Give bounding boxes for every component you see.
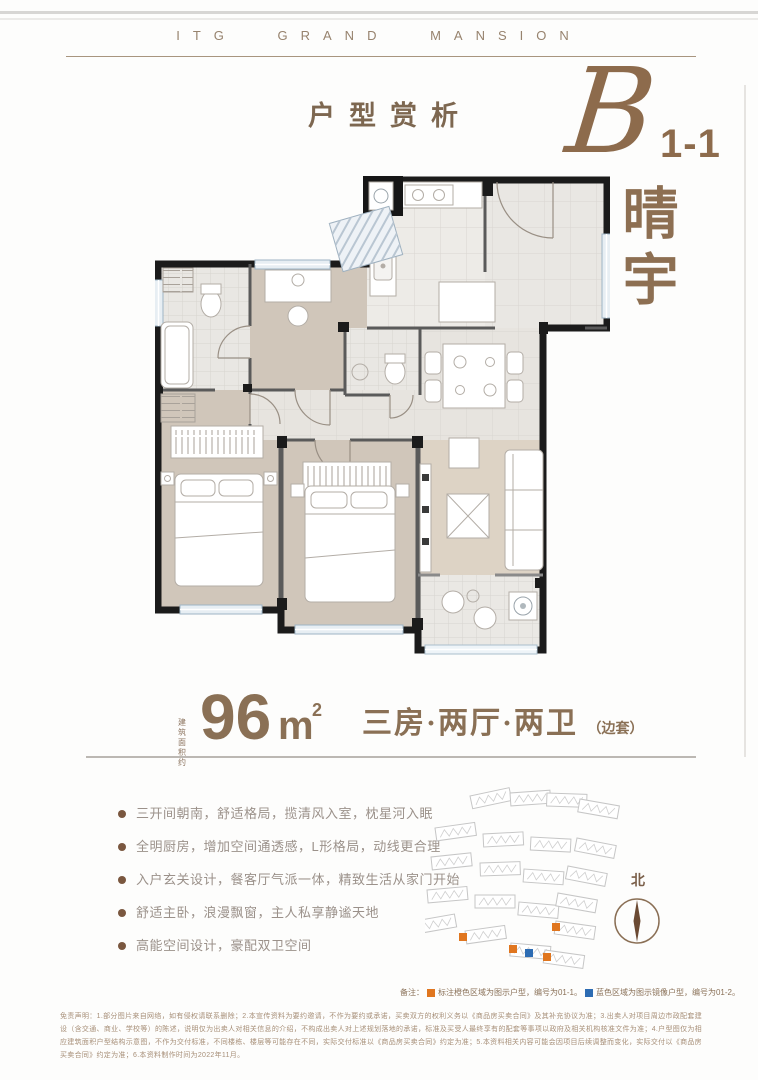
window-balcony-bottom xyxy=(425,645,537,654)
dining-table xyxy=(443,344,505,408)
sofa xyxy=(505,450,543,570)
top-border-line-2 xyxy=(0,18,758,20)
building-outline xyxy=(518,902,559,918)
page-title: 户型赏析 xyxy=(308,94,472,133)
building-outline xyxy=(427,887,468,903)
highlight-unit-orange xyxy=(552,923,560,931)
building-outline xyxy=(431,853,472,870)
unit-number: 1-1 xyxy=(660,122,721,167)
balcony-chair xyxy=(474,607,496,629)
feature-text: 高能空间设计，豪配双卫空间 xyxy=(136,938,312,953)
feature-text: 舒适主卧，浪漫飘窗，主人私享静谧天地 xyxy=(136,905,379,920)
building-outline xyxy=(554,921,595,939)
note-blue-text: 蓝色区域为图示镜像户型，编号为01-2。 xyxy=(596,987,740,998)
feature-item: 全明厨房，增加空间通透感，L形格局，动线更合理 xyxy=(118,839,460,854)
area-unit: m xyxy=(278,704,314,749)
unit-name-char-1: 晴 xyxy=(614,184,676,250)
building-outline xyxy=(475,895,515,908)
feature-item: 入户玄关设计，餐客厅气派一体，精致生活从家门开始 xyxy=(118,872,460,887)
highlight-unit-orange xyxy=(543,953,551,961)
nightstand xyxy=(264,472,277,485)
bullet-dot-icon xyxy=(118,810,126,818)
building-outline xyxy=(556,893,598,913)
nightstand xyxy=(161,472,174,485)
building-outline xyxy=(425,914,457,934)
window-bedroom1-bottom xyxy=(180,605,262,614)
highlight-unit-orange xyxy=(459,933,467,941)
study-chair xyxy=(288,306,308,326)
right-border-line xyxy=(744,85,746,757)
balcony-chair xyxy=(442,591,464,613)
side-table xyxy=(449,438,479,468)
unit-name-vertical: 晴宇 xyxy=(615,184,679,316)
bathtub-icon xyxy=(161,322,193,388)
bullet-dot-icon xyxy=(118,909,126,917)
nightstand xyxy=(291,484,304,497)
area-prefix-label: 建筑 面积约 xyxy=(178,718,187,768)
floor-plan-drawing xyxy=(155,176,610,663)
feature-list: 三开间朝南，舒适格局，揽清风入室，枕星河入眠 全明厨房，增加空间通透感，L形格局… xyxy=(118,806,460,971)
toilet-2-icon xyxy=(385,360,405,384)
building-outline xyxy=(575,838,617,858)
disclaimer-text: 免责声明：1.部分图片来自网络，如有侵权请联系删除；2.本宣传资料为要约邀请，不… xyxy=(60,1010,702,1062)
toilet-1-icon xyxy=(201,291,221,317)
bullet-dot-icon xyxy=(118,843,126,851)
area-value: 96 xyxy=(200,680,271,754)
foyer-cabinet xyxy=(439,282,495,322)
building-outline xyxy=(435,822,476,840)
building-outline xyxy=(566,866,608,886)
area-unit-superscript: 2 xyxy=(312,700,322,721)
building-outline xyxy=(530,837,571,852)
feature-text: 全明厨房，增加空间通透感，L形格局，动线更合理 xyxy=(136,839,441,854)
note-orange-text: 标注橙色区域为图示户型，编号为01-1。 xyxy=(438,987,582,998)
feature-item: 三开间朝南，舒适格局，揽清风入室，枕星河入眠 xyxy=(118,806,460,821)
building-outline xyxy=(483,832,524,847)
feature-item: 高能空间设计，豪配双卫空间 xyxy=(118,938,460,953)
building-outline xyxy=(510,790,551,806)
nightstand xyxy=(396,484,409,497)
layout-suffix: （边套） xyxy=(588,722,644,737)
poster-page: ITG GRAND MANSION 户型赏析 B 1-1 晴宇 xyxy=(0,0,758,1080)
site-plan: 北 xyxy=(425,783,735,988)
site-plan-buildings xyxy=(425,788,619,969)
note-label: 备注： xyxy=(400,987,424,998)
building-outline xyxy=(523,869,564,885)
legend-orange-swatch-icon xyxy=(427,989,435,997)
window-bath1-left xyxy=(155,280,163,326)
window-foyer-right xyxy=(602,234,610,318)
legend-note: 备注： 标注橙色区域为图示户型，编号为01-1。 蓝色区域为图示镜像户型，编号为… xyxy=(400,987,740,998)
bullet-dot-icon xyxy=(118,942,126,950)
window-bedroom2-bay xyxy=(295,625,403,634)
section-divider xyxy=(86,756,696,758)
feature-item: 舒适主卧，浪漫飘窗，主人私享静谧天地 xyxy=(118,905,460,920)
legend-blue-swatch-icon xyxy=(585,989,593,997)
window-study-top xyxy=(255,260,330,269)
highlight-unit-blue xyxy=(525,949,533,957)
feature-text: 三开间朝南，舒适格局，揽清风入室，枕星河入眠 xyxy=(136,806,433,821)
bullet-dot-icon xyxy=(118,876,126,884)
building-outline xyxy=(578,799,620,819)
building-outline xyxy=(465,925,506,943)
layout-rooms: 三房·两厅·两卫 xyxy=(362,707,578,740)
brand-logo-text: ITG GRAND MANSION xyxy=(0,28,758,43)
bath1-shelf xyxy=(163,268,193,292)
unit-name-char-2: 宇 xyxy=(614,250,676,316)
north-compass-icon: 北 xyxy=(615,872,659,943)
ac-platform xyxy=(161,394,195,422)
top-border-line-1 xyxy=(0,11,758,14)
layout-description: 三房·两厅·两卫 （边套） xyxy=(362,698,644,742)
washer-icon xyxy=(369,182,393,210)
building-outline xyxy=(470,788,512,809)
highlight-unit-orange xyxy=(509,945,517,953)
north-label: 北 xyxy=(631,872,645,888)
building-outline xyxy=(480,862,520,876)
feature-text: 入户玄关设计，餐客厅气派一体，精致生活从家门开始 xyxy=(136,872,460,887)
